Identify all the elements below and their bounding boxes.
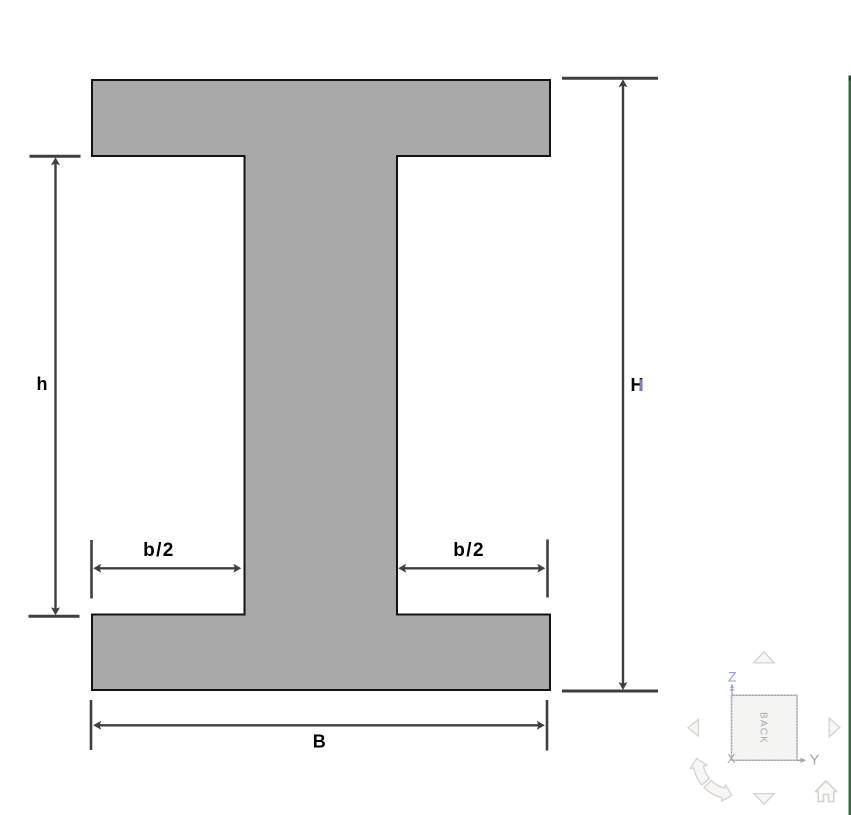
svg-text:Y: Y	[809, 752, 819, 769]
svg-text:X: X	[727, 751, 736, 766]
svg-text:b/2: b/2	[453, 540, 485, 561]
svg-text:BACK: BACK	[757, 712, 768, 744]
svg-text:h: h	[37, 374, 48, 394]
svg-text:b/2: b/2	[143, 540, 175, 561]
svg-text:Z: Z	[728, 669, 737, 685]
svg-text:B: B	[313, 732, 326, 752]
